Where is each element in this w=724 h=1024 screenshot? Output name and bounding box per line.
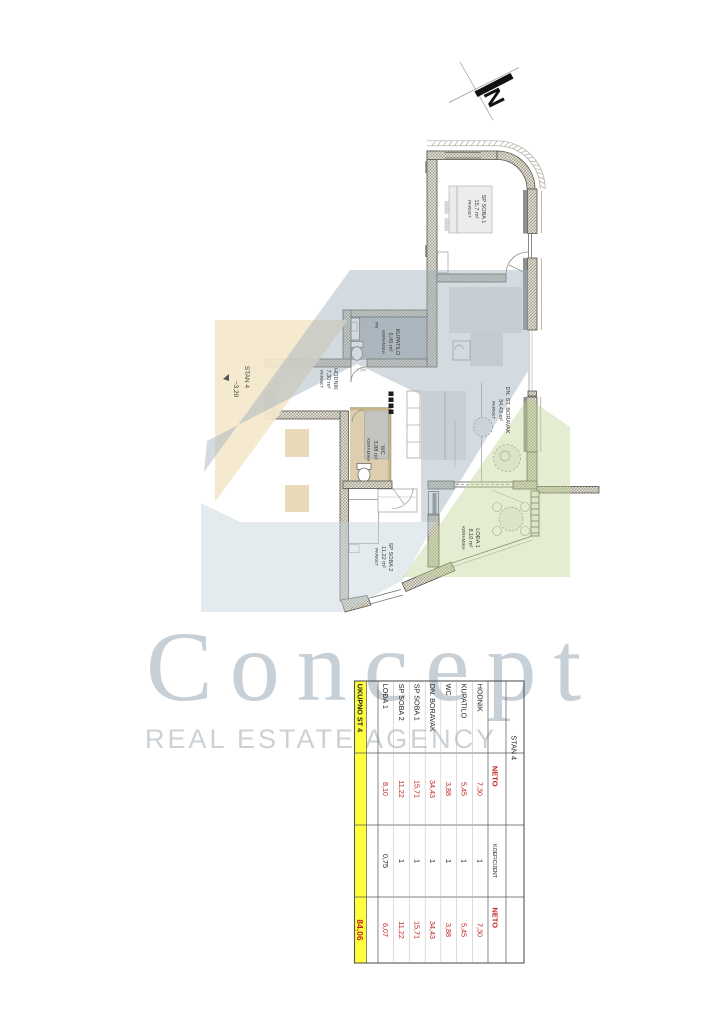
svg-text:15,7 m²: 15,7 m²: [473, 200, 479, 219]
svg-text:L 2M: L 2M: [357, 367, 366, 372]
svg-text:DN. BORAVAK: DN. BORAVAK: [428, 684, 437, 732]
svg-text:STAN 4: STAN 4: [509, 735, 518, 760]
svg-text:PR: PR: [374, 322, 379, 329]
svg-text:1: 1: [397, 859, 406, 863]
svg-text:3,88 m²: 3,88 m²: [372, 441, 378, 460]
svg-text:15,71: 15,71: [412, 921, 421, 939]
svg-text:−3,20: −3,20: [232, 381, 239, 398]
svg-text:KERAMIKA: KERAMIKA: [461, 526, 466, 551]
svg-text:KERAMIKA: KERAMIKA: [381, 330, 386, 355]
svg-text:11,22: 11,22: [397, 780, 406, 797]
svg-text:3,88: 3,88: [444, 923, 453, 937]
svg-text:WC: WC: [444, 684, 453, 696]
svg-text:1: 1: [428, 859, 437, 863]
svg-text:SP SOBA 1: SP SOBA 1: [412, 684, 421, 721]
svg-text:PARKET: PARKET: [467, 200, 472, 218]
svg-text:11,22: 11,22: [397, 921, 406, 938]
svg-text:PARKET: PARKET: [319, 370, 324, 388]
svg-text:SP SOBA 1: SP SOBA 1: [480, 195, 486, 224]
svg-text:7,30: 7,30: [475, 782, 484, 796]
svg-text:WC: WC: [379, 445, 385, 454]
svg-text:NETO: NETO: [490, 907, 499, 928]
svg-text:UKUPNO ST 4: UKUPNO ST 4: [355, 684, 364, 732]
svg-text:34,43 m²: 34,43 m²: [497, 399, 503, 421]
svg-text:1: 1: [444, 859, 453, 863]
svg-text:SP SOBA 2: SP SOBA 2: [387, 543, 393, 572]
svg-text:LOĐA 1: LOĐA 1: [381, 684, 390, 709]
svg-text:SP SOBA 2: SP SOBA 2: [397, 684, 406, 721]
svg-text:7,30 m²: 7,30 m²: [325, 370, 331, 389]
svg-text:REAL ESTATE AGENCY: REAL ESTATE AGENCY: [145, 724, 497, 754]
svg-text:0,75: 0,75: [381, 854, 390, 868]
svg-text:KOEFICIJENT: KOEFICIJENT: [491, 844, 497, 879]
svg-text:5,45: 5,45: [460, 923, 469, 937]
svg-text:34,43: 34,43: [428, 921, 437, 939]
svg-text:KUPATILO: KUPATILO: [460, 684, 469, 719]
svg-text:34,43: 34,43: [428, 780, 437, 798]
svg-text:HODNIK: HODNIK: [332, 368, 338, 390]
svg-text:8,10: 8,10: [381, 782, 390, 796]
svg-text:6,07: 6,07: [381, 923, 390, 937]
svg-text:Concept: Concept: [146, 611, 598, 722]
svg-text:HODNIK: HODNIK: [475, 684, 484, 712]
svg-text:STAN 4: STAN 4: [243, 366, 250, 389]
svg-text:5,45 m²: 5,45 m²: [387, 333, 393, 352]
svg-text:PARKET: PARKET: [374, 548, 379, 566]
svg-text:LOĐA 1: LOĐA 1: [474, 528, 480, 548]
svg-text:1: 1: [412, 859, 421, 863]
svg-text:PARKET: PARKET: [491, 401, 496, 419]
svg-text:1: 1: [475, 859, 484, 863]
svg-text:KERAMIKA: KERAMIKA: [366, 438, 371, 463]
svg-text:DN. ST. BORAVAK: DN. ST. BORAVAK: [504, 386, 510, 433]
svg-text:11,22 m²: 11,22 m²: [380, 546, 386, 568]
svg-text:NETO: NETO: [490, 766, 499, 787]
svg-text:7,30: 7,30: [475, 923, 484, 937]
svg-text:5,45: 5,45: [460, 782, 469, 796]
svg-text:3,88: 3,88: [444, 782, 453, 796]
svg-text:8,10 m²: 8,10 m²: [467, 529, 473, 548]
svg-text:15,71: 15,71: [412, 780, 421, 798]
svg-text:KUPATILO: KUPATILO: [394, 329, 400, 356]
svg-text:84,06: 84,06: [355, 919, 365, 941]
svg-text:1: 1: [460, 859, 469, 863]
